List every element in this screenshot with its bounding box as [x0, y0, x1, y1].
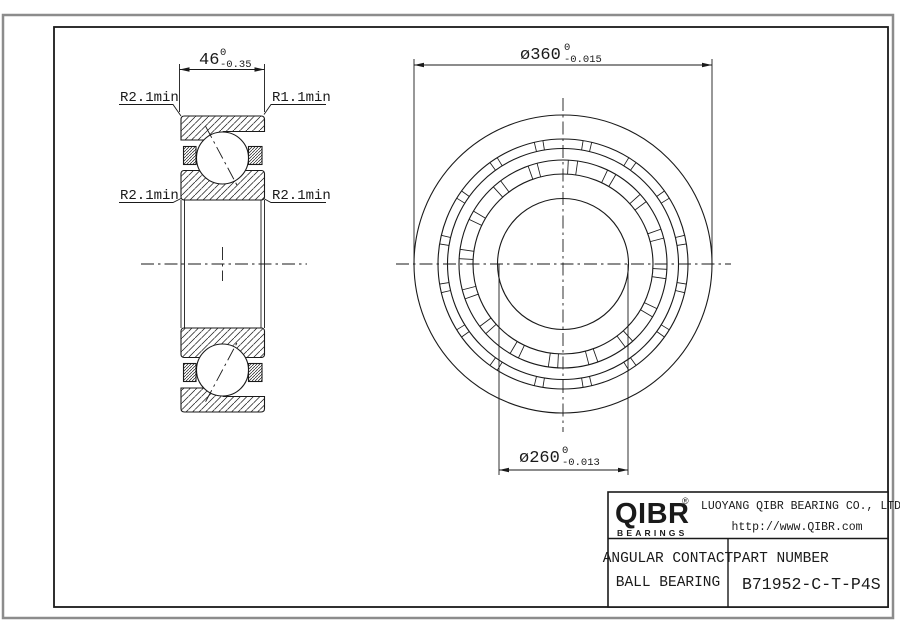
drawing-sheet: 46 0 -0.35 R2.1min R1.1min R2.1min R2.1m… — [0, 0, 900, 636]
r-label-mid-left: R2.1min — [120, 188, 179, 204]
dim-width-tol-upper: 0 — [220, 47, 226, 59]
cage-section-lower-right — [249, 364, 263, 382]
cage-section-upper-right — [249, 147, 263, 165]
dim-width-tol-lower: -0.35 — [220, 59, 252, 71]
brand-logo-subtext: BEARINGS — [617, 528, 687, 538]
bearing-type-line2: BALL BEARING — [616, 575, 720, 591]
bearing-drawing-svg: 46 0 -0.35 R2.1min R1.1min R2.1min R2.1m… — [0, 0, 900, 636]
dim-bore-tol-lower: -0.013 — [562, 457, 600, 469]
part-number-label: PART NUMBER — [733, 551, 829, 567]
dim-od-tol-upper: 0 — [564, 42, 570, 54]
dim-width-value: 46 — [199, 51, 219, 70]
bearing-type-line1: ANGULAR CONTACT — [603, 551, 734, 567]
r-label-top-left: R2.1min — [120, 90, 179, 106]
cage-section-upper-left — [184, 147, 197, 165]
company-name: LUOYANG QIBR BEARING CO., LTD — [701, 500, 900, 513]
registered-mark-icon: ® — [682, 496, 689, 506]
dim-od-value: ø360 — [520, 46, 561, 65]
part-number-value: B71952-C-T-P4S — [742, 575, 881, 594]
cage-section-lower-left — [184, 364, 197, 382]
dim-bore-value: ø260 — [519, 449, 560, 468]
r-label-top-right: R1.1min — [272, 90, 331, 106]
company-website: http://www.QIBR.com — [731, 521, 862, 534]
r-label-mid-right: R2.1min — [272, 188, 331, 204]
dim-od-tol-lower: -0.015 — [564, 54, 602, 66]
dim-bore-tol-upper: 0 — [562, 445, 568, 457]
title-block: QIBR ® BEARINGS LUOYANG QIBR BEARING CO.… — [603, 492, 900, 607]
brand-logo: QIBR — [615, 498, 690, 530]
